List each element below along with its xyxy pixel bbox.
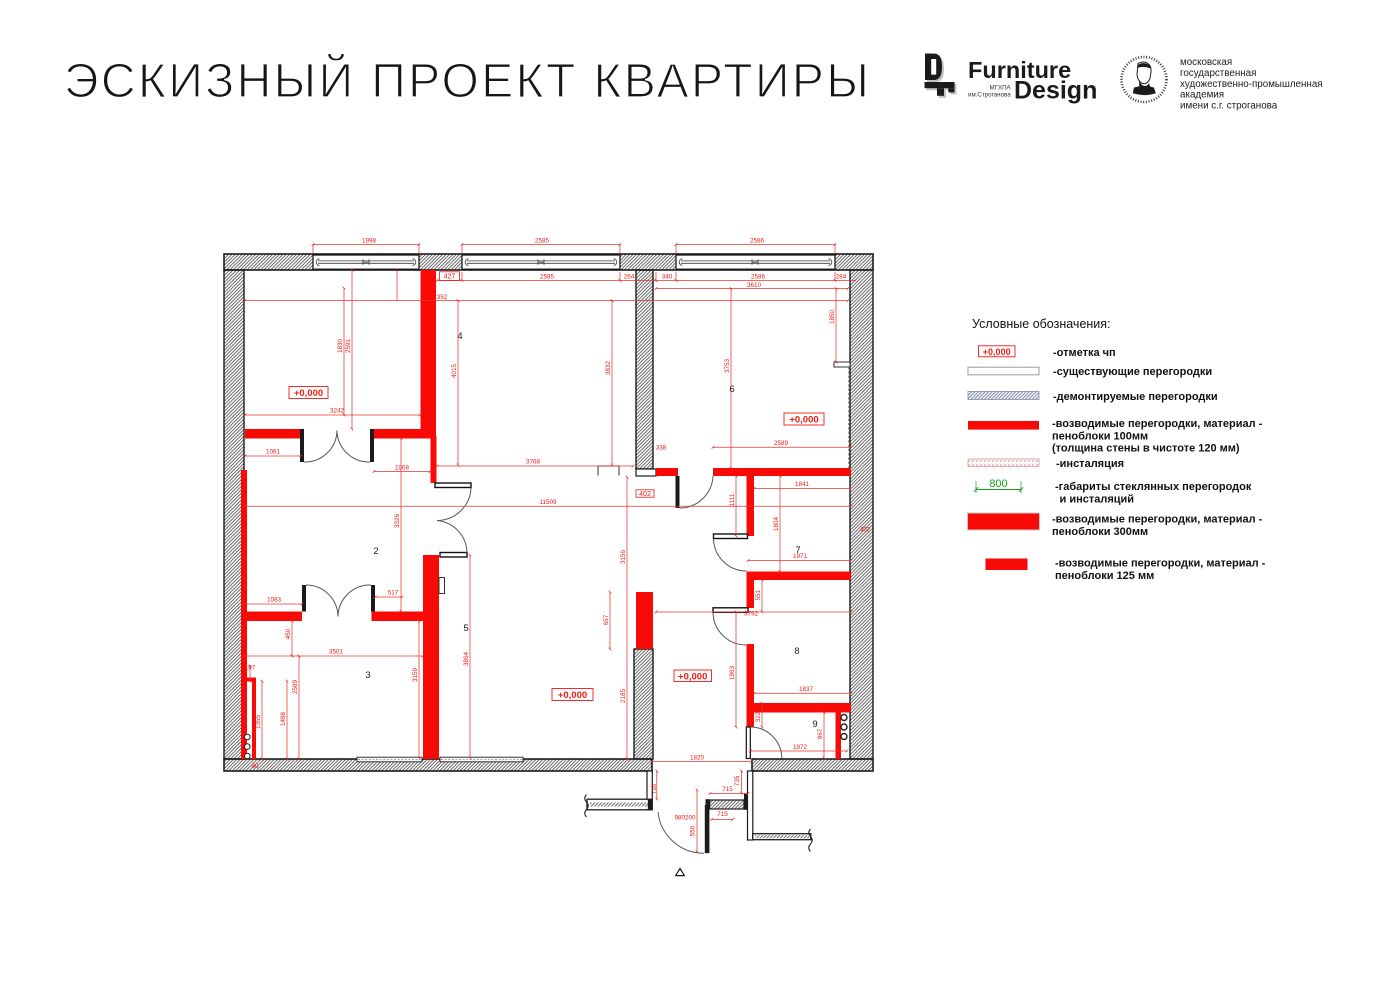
svg-text:352: 352 — [437, 294, 448, 301]
svg-text:551: 551 — [755, 589, 762, 600]
svg-text:-возводимые перегородки, матер: -возводимые перегородки, материал - — [1052, 513, 1263, 525]
svg-text:715: 715 — [722, 786, 733, 793]
svg-text:1804: 1804 — [773, 517, 780, 532]
svg-text:пеноблоки 300мм: пеноблоки 300мм — [1052, 526, 1148, 538]
svg-text:550: 550 — [690, 825, 697, 836]
svg-text:264: 264 — [624, 274, 635, 281]
svg-text:-демонтируемые перегородки: -демонтируемые перегородки — [1053, 391, 1218, 403]
svg-text:197: 197 — [245, 665, 256, 672]
svg-text:338: 338 — [656, 445, 667, 452]
svg-text:+0,000: +0,000 — [789, 415, 818, 426]
svg-text:3501: 3501 — [329, 649, 344, 656]
svg-text:художественно-промышленная: художественно-промышленная — [1180, 79, 1323, 90]
svg-text:3832: 3832 — [605, 361, 612, 376]
svg-text:1061: 1061 — [266, 449, 281, 456]
svg-text:322: 322 — [755, 711, 762, 722]
svg-text:ЭСКИЗНЫЙ ПРОЕКТ КВАРТИРЫ: ЭСКИЗНЫЙ ПРОЕКТ КВАРТИРЫ — [64, 53, 871, 108]
svg-text:пеноблоки 125 мм: пеноблоки 125 мм — [1055, 570, 1154, 582]
svg-text:-габариты стеклянных перегород: -габариты стеклянных перегородок — [1055, 481, 1252, 493]
svg-text:657: 657 — [603, 614, 610, 625]
svg-text:3326: 3326 — [394, 514, 401, 529]
svg-text:2185: 2185 — [620, 689, 627, 704]
svg-text:2585: 2585 — [540, 274, 555, 281]
svg-text:9: 9 — [812, 719, 817, 730]
svg-text:им.Строганова: им.Строганова — [968, 91, 1011, 98]
svg-text:284: 284 — [836, 274, 847, 281]
svg-text:3768: 3768 — [526, 459, 541, 466]
svg-text:академия: академия — [1180, 90, 1224, 101]
svg-text:+0,000: +0,000 — [678, 671, 707, 682]
svg-text:московская: московская — [1180, 57, 1232, 68]
svg-text:1963: 1963 — [729, 666, 736, 681]
svg-text:1068: 1068 — [395, 465, 410, 472]
svg-text:3753: 3753 — [724, 359, 731, 374]
svg-text:1830: 1830 — [337, 339, 344, 354]
svg-text:3156: 3156 — [620, 550, 627, 565]
svg-text:402: 402 — [860, 527, 871, 534]
svg-text:3: 3 — [365, 670, 370, 681]
svg-text:1083: 1083 — [267, 597, 282, 604]
svg-text:1850: 1850 — [829, 310, 836, 325]
svg-text:4: 4 — [457, 331, 462, 342]
svg-text:-существующие перегородки: -существующие перегородки — [1053, 366, 1212, 378]
svg-text:1998: 1998 — [362, 238, 377, 245]
svg-text:1820: 1820 — [690, 755, 705, 762]
svg-text:-возводимые перегородки, матер: -возводимые перегородки, материал - — [1055, 558, 1266, 570]
svg-text:730: 730 — [651, 783, 658, 794]
svg-text:7: 7 — [795, 545, 800, 556]
svg-text:и инсталяций: и инсталяций — [1060, 494, 1135, 506]
svg-text:402: 402 — [639, 491, 651, 498]
svg-text:+0,000: +0,000 — [558, 690, 587, 701]
svg-text:1355: 1355 — [255, 715, 262, 730]
svg-text:2586: 2586 — [751, 274, 766, 281]
svg-text:2585: 2585 — [535, 238, 550, 245]
svg-text:1837: 1837 — [799, 686, 814, 693]
svg-text:-инсталяция: -инсталяция — [1056, 458, 1124, 470]
svg-text:1498: 1498 — [280, 712, 287, 727]
svg-text:6: 6 — [729, 384, 734, 395]
svg-text:имени с.г. строганова: имени с.г. строганова — [1180, 101, 1278, 112]
svg-text:800: 800 — [989, 478, 1007, 490]
svg-text:3242: 3242 — [330, 408, 345, 415]
svg-text:государственная: государственная — [1180, 68, 1256, 79]
svg-text:450: 450 — [285, 628, 292, 639]
svg-text:3159: 3159 — [412, 668, 419, 683]
svg-text:980200: 980200 — [674, 815, 696, 822]
svg-text:1972: 1972 — [793, 744, 808, 751]
svg-text:2: 2 — [373, 546, 378, 557]
svg-text:8: 8 — [794, 646, 799, 657]
svg-text:Условные обозначения:: Условные обозначения: — [972, 317, 1111, 331]
svg-text:3792: 3792 — [744, 611, 759, 618]
svg-text:735: 735 — [734, 775, 741, 786]
svg-text:5: 5 — [463, 623, 468, 634]
svg-text:(толщина стены в чистоте 120 м: (толщина стены в чистоте 120 мм) — [1052, 443, 1240, 455]
svg-text:1841: 1841 — [795, 481, 810, 488]
svg-text:2589: 2589 — [292, 680, 299, 695]
svg-text:2586: 2586 — [750, 238, 765, 245]
svg-text:2589: 2589 — [774, 440, 789, 447]
svg-text:967: 967 — [817, 728, 824, 739]
svg-text:пеноблоки 100мм: пеноблоки 100мм — [1052, 430, 1148, 442]
svg-text:-возводимые перегородки, матер: -возводимые перегородки, материал - — [1052, 418, 1263, 430]
svg-text:427: 427 — [444, 274, 456, 281]
svg-text:2591: 2591 — [345, 339, 352, 354]
svg-text:3610: 3610 — [747, 282, 762, 289]
svg-text:1111: 1111 — [729, 493, 736, 506]
svg-text:+0,000: +0,000 — [294, 388, 323, 399]
svg-text:715: 715 — [717, 811, 728, 818]
svg-text:4015: 4015 — [451, 364, 458, 379]
svg-text:-отметка чп: -отметка чп — [1053, 347, 1116, 359]
svg-text:80: 80 — [251, 763, 259, 770]
svg-text:340: 340 — [662, 274, 673, 281]
svg-text:Design: Design — [1014, 77, 1097, 105]
svg-text:11509: 11509 — [539, 499, 557, 506]
svg-text:3864: 3864 — [463, 652, 470, 667]
svg-text:+0,000: +0,000 — [983, 347, 1011, 357]
svg-text:517: 517 — [388, 590, 399, 597]
